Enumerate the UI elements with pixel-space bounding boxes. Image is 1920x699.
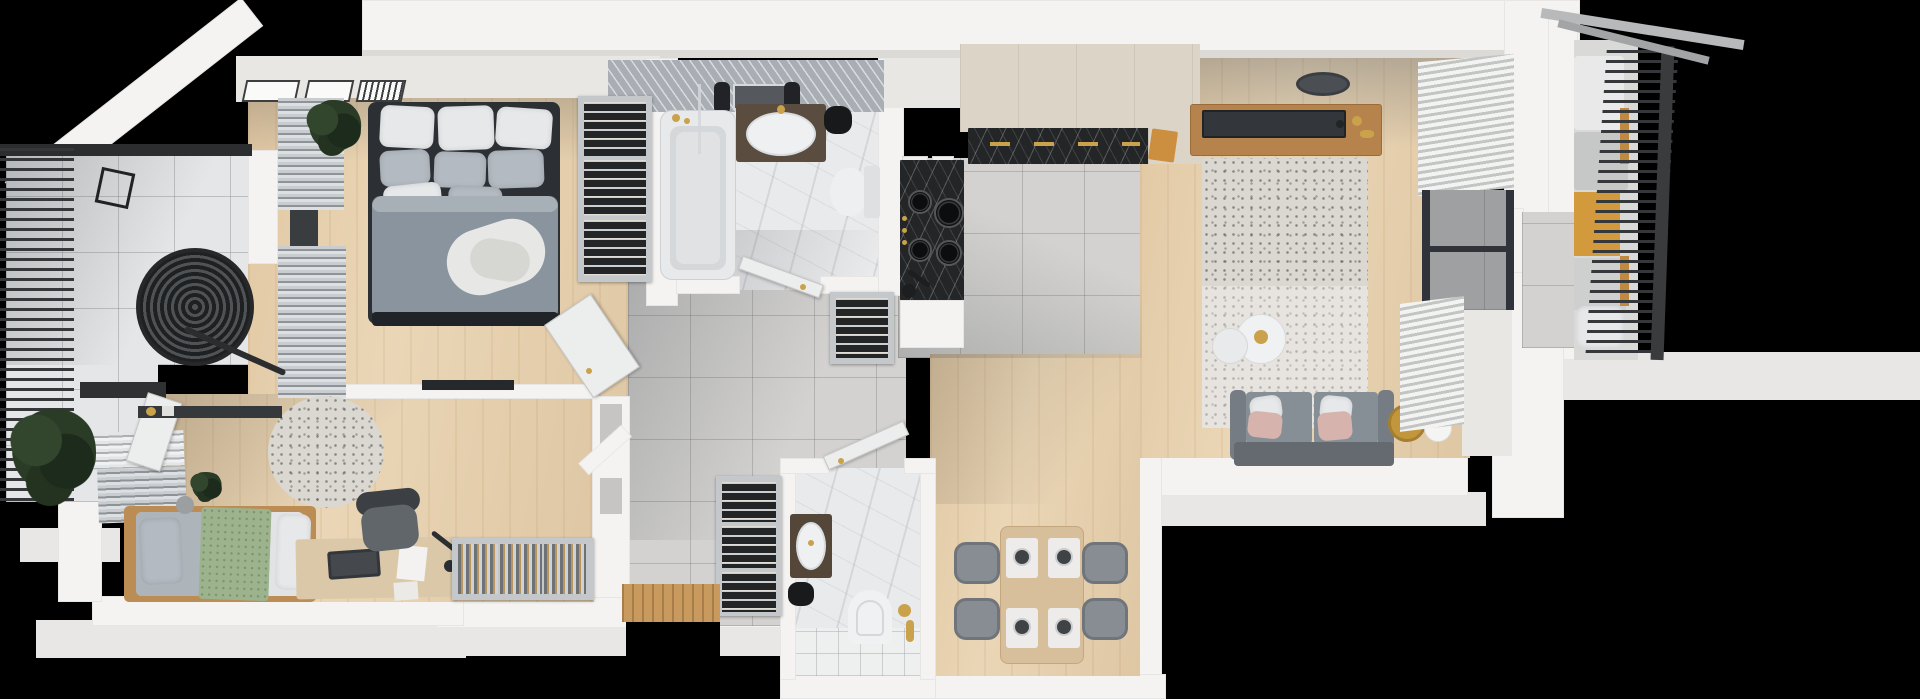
toilet-1-bowl (830, 168, 866, 216)
console-decor-gold (1352, 116, 1362, 126)
bed-pillow-1 (379, 105, 435, 150)
kids-wardrobe-shelf-2 (500, 544, 542, 594)
kitchen-hob-counter (900, 160, 964, 300)
bed-pillow-4 (379, 149, 431, 188)
hob-burner-2 (934, 198, 964, 228)
hall-tall-wardrobe-rail-1 (722, 482, 776, 522)
coffee-table-small (1212, 328, 1248, 364)
hall-tall-wardrobe-rail-2 (722, 526, 776, 568)
wall-dining-bottom (928, 674, 1166, 699)
kids-shelf-item-1 (146, 407, 156, 416)
bathtub-faucet (672, 114, 680, 122)
bowl-2 (1055, 548, 1073, 566)
hob-knob-1 (902, 216, 907, 221)
hall-wardrobe-rail (836, 298, 888, 358)
toilet-1-tank (864, 166, 880, 218)
kitchen-upper-cabinets (960, 44, 1200, 132)
kitchen-handle-2 (1034, 142, 1054, 146)
dining-chair-2 (954, 598, 1000, 640)
hob-burner-4 (936, 240, 962, 266)
living-tv (1202, 110, 1346, 138)
bath1-faucet (777, 105, 785, 114)
entry-doormat (622, 584, 720, 622)
wall-bath2-top-a (780, 458, 830, 474)
bedroom-door-handle (586, 368, 592, 374)
balcony-plant-large (110, 158, 290, 242)
bath2-door-handle (838, 458, 844, 464)
entry-door-void (626, 618, 720, 658)
dining-chair-1 (954, 542, 1000, 584)
kids-shelf-item-2 (162, 406, 174, 416)
balcony-right-floor (1522, 212, 1574, 348)
kids-plant-pot (176, 496, 194, 514)
ceiling-lamp (1296, 72, 1350, 96)
bath1-door-handle (800, 284, 806, 290)
kitchen-counter-black (968, 128, 1148, 164)
bed-pillow-5 (433, 151, 486, 189)
bedroom-wardrobe-rail-2 (584, 160, 646, 216)
kids-laptop (327, 548, 381, 580)
kitchen-handle-3 (1078, 142, 1098, 146)
wall-bath2-top-b (904, 458, 936, 474)
kitchen-handle-4 (1122, 142, 1140, 146)
toilet-paper-holder (898, 604, 911, 617)
bath2-towel (788, 582, 814, 606)
kids-wardrobe-shelf-3 (544, 544, 586, 594)
bowl-1 (1013, 548, 1031, 566)
hob-knob-3 (902, 240, 907, 245)
platform-living-bottom (1146, 492, 1486, 526)
dining-chair-4 (1082, 598, 1128, 640)
kitchen-handle-1 (990, 142, 1010, 146)
kids-paper-1 (396, 545, 427, 582)
shower-glass (698, 84, 701, 154)
sofa-pillow-pink-2 (1317, 411, 1353, 442)
platform-entry (436, 624, 796, 656)
bed-foot-bench (372, 312, 558, 326)
bedroom-louver-panel-b (278, 246, 346, 398)
kids-pillow (138, 517, 183, 585)
living-rug (1202, 158, 1368, 428)
bed-pillow-6 (487, 149, 544, 189)
window-blinds-lower (1400, 296, 1464, 432)
bath1-towel (824, 106, 852, 134)
kids-blanket-green (198, 507, 271, 601)
sofa-pillow-pink-1 (1247, 410, 1284, 439)
bed-pillow-3 (495, 106, 554, 150)
kids-wardrobe-shelf-1 (458, 544, 498, 594)
hall-tall-wardrobe-rail-3 (722, 572, 776, 612)
window-mullion-mid (1422, 246, 1514, 252)
coffee-table-bowl (1254, 330, 1268, 344)
dining-chair-3 (1082, 542, 1128, 584)
kids-wall-shelf (138, 406, 282, 418)
wall-left-corner (58, 496, 102, 602)
bedroom-wardrobe-rail-1 (584, 102, 646, 156)
bowl-4 (1055, 618, 1073, 636)
window-plant-sprig (1384, 120, 1430, 160)
kids-paper-2 (393, 581, 418, 601)
bowl-3 (1013, 618, 1031, 636)
wall-hall-inset-b (600, 478, 622, 514)
window-blinds-upper (1418, 54, 1514, 196)
sofa-backrest (1234, 442, 1394, 466)
console-decor-dark (1336, 120, 1344, 128)
console-decor-gold-2 (1360, 130, 1374, 138)
bathtub-faucet-2 (684, 118, 690, 124)
bedroom-wardrobe-rail-3 (584, 220, 646, 276)
hob-burner-1 (908, 190, 932, 214)
bed-duvet-fold (372, 196, 558, 212)
wall-window-return-right (1462, 296, 1512, 456)
toilet-2-seat (856, 600, 884, 636)
skylight-3 (356, 80, 407, 102)
bedroom-tv (422, 380, 514, 390)
cabinet-column-top (884, 58, 962, 108)
wall-bath2-right (920, 468, 936, 680)
bath2-basin (796, 522, 826, 570)
cutting-board (1148, 128, 1178, 162)
table-centerpiece (1028, 582, 1056, 608)
hob-burner-3 (908, 238, 932, 262)
kids-chair-seat (360, 503, 420, 553)
bath2-faucet (808, 540, 814, 546)
bath1-basin (746, 112, 816, 156)
toilet-brush (906, 620, 914, 642)
apartment-floorplan-render (0, 0, 1920, 699)
bed-pillow-2 (437, 105, 495, 151)
pan (902, 284, 916, 298)
hob-knob-2 (902, 228, 907, 233)
kitchen-island-end (900, 300, 964, 348)
